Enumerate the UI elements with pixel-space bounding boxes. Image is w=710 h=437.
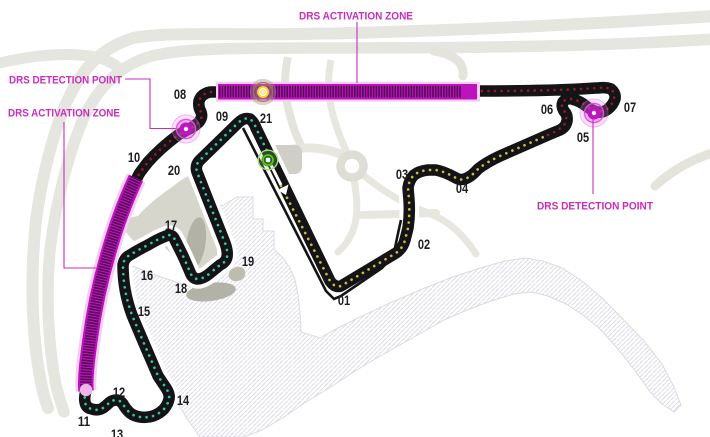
svg-text:DRS ACTIVATION ZONE: DRS ACTIVATION ZONE [299,11,413,23]
svg-text:05: 05 [577,130,590,145]
svg-text:21: 21 [260,111,273,126]
svg-text:08: 08 [174,87,187,102]
svg-text:01: 01 [338,293,351,308]
svg-text:15: 15 [138,304,151,319]
svg-text:14: 14 [177,393,190,408]
svg-text:03: 03 [396,167,408,182]
svg-text:13: 13 [111,427,123,437]
svg-text:19: 19 [242,254,254,269]
svg-text:10: 10 [128,150,140,165]
svg-text:16: 16 [141,268,153,283]
svg-text:06: 06 [541,102,553,117]
svg-text:07: 07 [624,100,636,115]
svg-text:12: 12 [113,385,125,400]
svg-text:DRS DETECTION POINT: DRS DETECTION POINT [537,201,653,213]
svg-text:20: 20 [168,163,180,178]
svg-text:02: 02 [418,237,430,252]
svg-text:17: 17 [165,218,177,233]
svg-text:DRS ACTIVATION ZONE: DRS ACTIVATION ZONE [8,108,120,120]
svg-text:DRS DETECTION POINT: DRS DETECTION POINT [9,75,122,87]
svg-text:09: 09 [216,109,228,124]
svg-text:04: 04 [456,181,469,196]
svg-text:18: 18 [175,281,188,296]
svg-text:11: 11 [78,414,91,429]
